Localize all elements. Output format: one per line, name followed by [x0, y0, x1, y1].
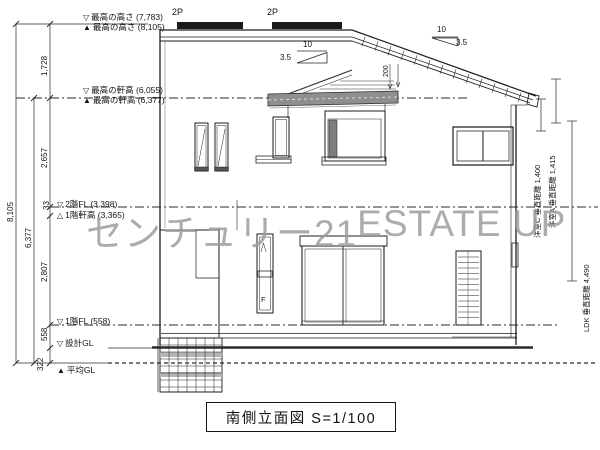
triangle-marker-icon: ▲	[83, 96, 91, 105]
dim-second: 2,657	[40, 148, 49, 168]
level-design-gl: ▽設計GL	[57, 337, 94, 349]
triangle-marker-icon: ▽	[57, 317, 63, 326]
watermark-brand: センチュリー21	[86, 203, 357, 257]
slope-run-right: 10	[437, 25, 446, 34]
second-floor-windows	[195, 111, 514, 171]
dim-gap: 33	[42, 201, 51, 210]
fixed-window-mark: F	[261, 295, 266, 304]
solar-panel-label-2: 2P	[267, 7, 278, 17]
level-max-height-avg: ▲最高の高さ (8,105)	[83, 21, 165, 33]
dim-first: 2,807	[40, 262, 49, 282]
dim-roof-drop: 200	[383, 65, 390, 77]
slope-run-left: 10	[303, 40, 312, 49]
level-avg-gl: ▲平均GL	[57, 364, 95, 376]
dim-upper: 1,728	[40, 56, 49, 76]
triangle-marker-icon: ▽	[57, 200, 63, 209]
drawing-title: 南側立面図 S=1/100	[226, 407, 376, 428]
daylight-label-ldk: LDK 垂直距離 4,490	[581, 264, 592, 332]
level-max-eave-avg: ▲最高の軒高 (6,377)	[83, 94, 165, 106]
solar-panels	[177, 22, 342, 29]
slope-rise-right: 3.5	[456, 38, 467, 47]
level-1f-fl: ▽1階FL (558)	[57, 315, 110, 327]
solar-panel-label-1: 2P	[172, 7, 183, 17]
triangle-marker-icon: ▲	[83, 23, 91, 32]
triangle-marker-icon: △	[57, 211, 63, 220]
building-outline	[160, 30, 539, 345]
triangle-marker-icon: ▲	[57, 366, 65, 375]
watermark: センチュリー21 ESTATE UP	[86, 203, 528, 257]
dim-eave-total: 6,377	[24, 228, 33, 248]
dim-gl: 322	[36, 358, 45, 371]
triangle-marker-icon: ▽	[57, 339, 63, 348]
dim-fl1: 558	[40, 328, 49, 341]
elevation-drawing-page: ▽最高の高さ (7,783) ▲最高の高さ (8,105) ▽最高の軒高 (6,…	[0, 0, 600, 450]
slope-rise-left: 3.5	[280, 53, 291, 62]
title-block: 南側立面図 S=1/100	[206, 402, 396, 432]
foundation	[158, 334, 517, 393]
dim-overall-height: 8,105	[6, 202, 15, 222]
watermark-company: ESTATE UP	[357, 203, 566, 257]
